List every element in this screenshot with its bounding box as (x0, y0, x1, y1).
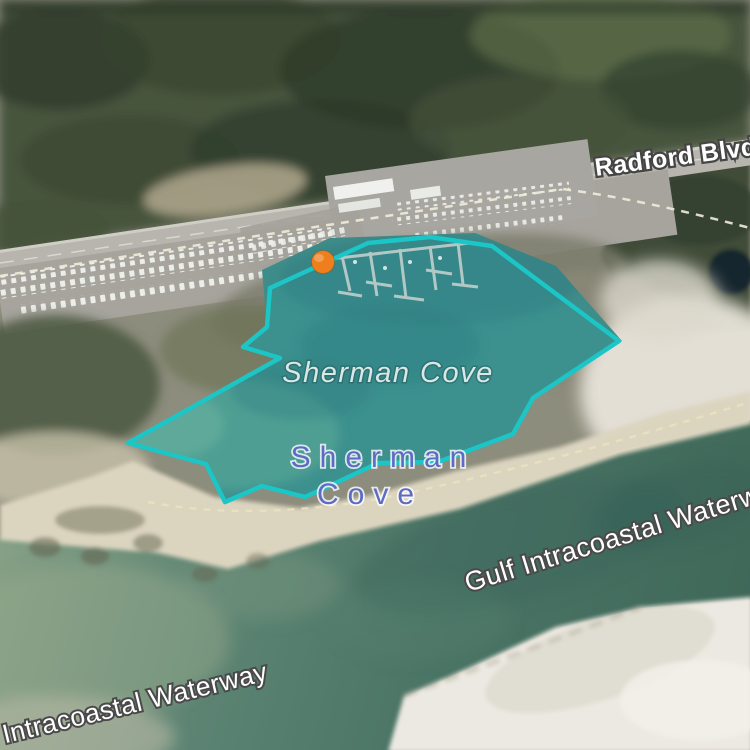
map-canvas[interactable]: Radford Blvd Sherman Cove Sherman Cove G… (0, 0, 750, 750)
satellite-map[interactable]: Radford Blvd Sherman Cove Sherman Cove G… (0, 0, 750, 750)
map-marker[interactable] (312, 251, 335, 274)
marker-dot[interactable] (312, 251, 335, 274)
cove-area-label: Sherman Cove (282, 357, 493, 389)
water-body-label-line2: Cove (317, 478, 423, 511)
water-body-label-line1: Sherman (291, 441, 476, 474)
marker-highlight (314, 254, 324, 262)
